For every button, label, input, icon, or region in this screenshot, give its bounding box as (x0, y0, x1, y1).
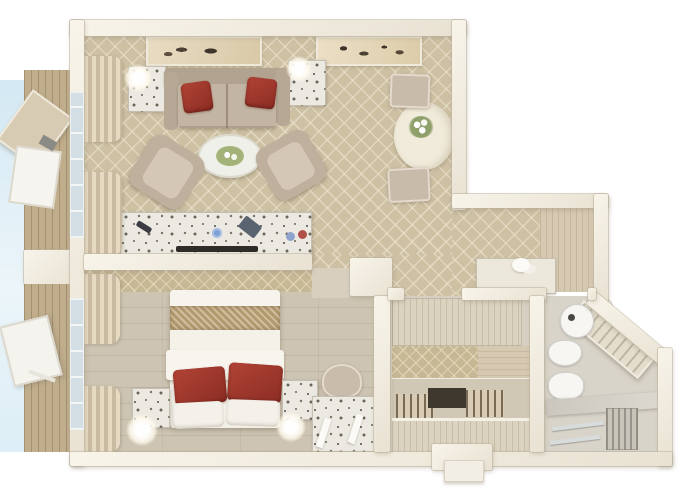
bathroom-right-wall (658, 348, 672, 466)
bed-white-pillow-left (171, 401, 224, 430)
hall-closet-divider-seg1 (388, 288, 404, 300)
top-wall (70, 20, 466, 36)
bed-red-pillow-right (227, 362, 284, 404)
coffee-table-decor (216, 146, 244, 166)
hallway-right-wall (594, 194, 608, 302)
closet-dark-niche (428, 388, 466, 408)
closet-upper-shelf (392, 298, 522, 349)
bedroom-curtain-lower (84, 386, 120, 452)
living-bedroom-wall (84, 254, 312, 270)
bed-sheet (170, 330, 280, 352)
round-sink (560, 304, 594, 338)
closet-back-wallpaper (392, 346, 478, 378)
living-curtain-upper (84, 56, 122, 142)
closet-bathroom-divider (530, 296, 544, 452)
toilet (548, 340, 582, 366)
hall-bath-divider-seg3 (588, 288, 596, 300)
sofa-arm-left (164, 72, 178, 130)
floorplan-render (0, 0, 680, 487)
bed-head-roll (170, 290, 280, 307)
sink-drain (568, 314, 575, 321)
bedroom-right-wall (374, 296, 390, 452)
towel-decoration (512, 258, 530, 272)
dining-chair-top (389, 73, 430, 108)
bedroom-window (70, 298, 84, 430)
glass-blue (286, 232, 295, 241)
dining-chair-bottom (387, 167, 431, 203)
bedroom-door-threshold (312, 268, 350, 298)
glass-red (298, 230, 307, 239)
living-curtain-lower (84, 172, 122, 256)
desk-chair (322, 364, 362, 398)
lounge-chair-upper-frame (8, 145, 62, 209)
bed-gold-runner (170, 306, 280, 330)
sofa-red-pillow-right (244, 76, 277, 109)
towel-radiator (606, 408, 638, 450)
bed-white-pillow-right (226, 399, 281, 427)
wing-top-wall (452, 194, 608, 208)
bedroom-curtain-upper (84, 274, 120, 344)
bidet (548, 372, 584, 400)
bedroom-door-stub-wall (350, 258, 392, 296)
living-room-window (70, 92, 84, 238)
sofa-red-pillow-left (180, 80, 214, 114)
bedside-lamp-right-glow (276, 412, 306, 442)
flower-vase (408, 116, 434, 138)
cup-blue (212, 228, 222, 238)
bottom-wall (70, 452, 672, 466)
table-lamp-left-glow (124, 64, 152, 92)
flat-tv (176, 246, 258, 252)
table-lamp-right-glow (286, 56, 312, 82)
bedside-lamp-left-glow (126, 414, 158, 446)
wall-art-right (316, 36, 422, 66)
entry-door (444, 460, 484, 482)
closet-slatted-shelf-right (466, 390, 504, 417)
wall-art-left (146, 36, 262, 66)
living-right-wall (452, 20, 466, 210)
